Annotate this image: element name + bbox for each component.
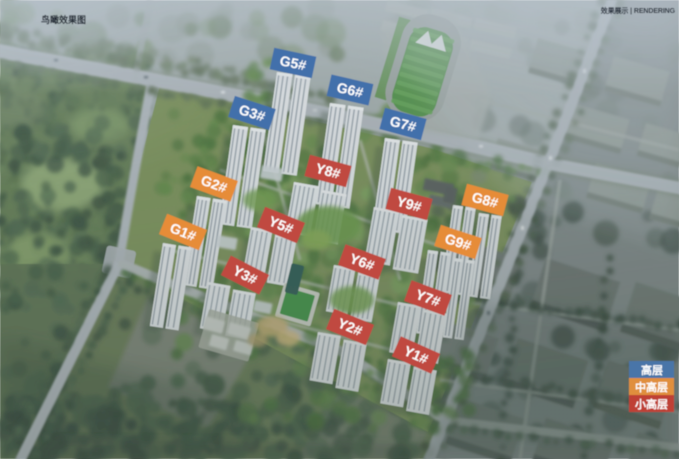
svg-text:鸟瞰效果图: 鸟瞰效果图 [41, 14, 86, 25]
svg-text:中高层: 中高层 [635, 380, 668, 394]
svg-text:效果展示 | RENDERING: 效果展示 | RENDERING [601, 6, 676, 15]
svg-text:高层: 高层 [641, 363, 663, 377]
svg-text:小高层: 小高层 [634, 397, 668, 411]
